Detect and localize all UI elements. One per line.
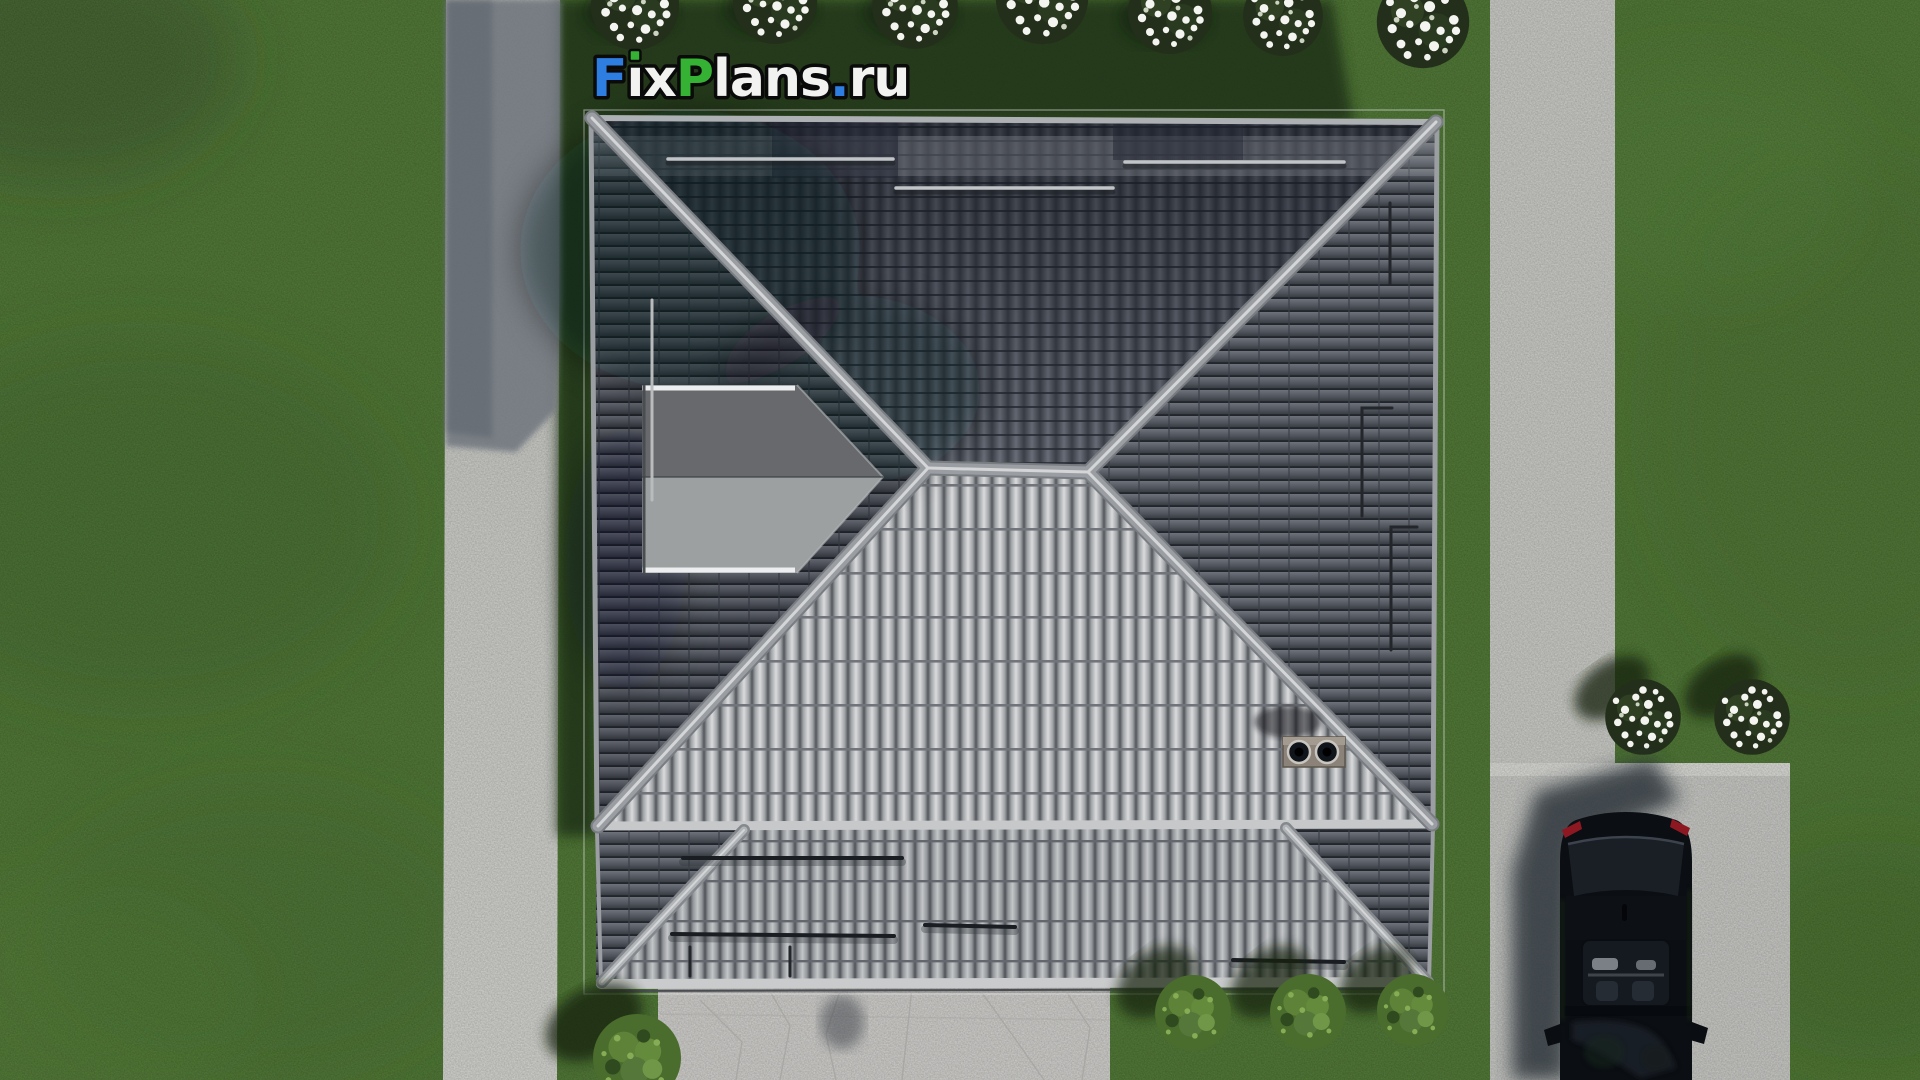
logo-part: lans [713,49,830,109]
north-eave-inset-right [1113,122,1243,160]
south-eave [597,824,1433,826]
aerial-render: FıxPlans.ru [0,0,1920,1080]
logo-part: ru [849,49,910,109]
seat-left [1596,981,1618,1001]
green-bush [1377,974,1449,1046]
watermark: FıxPlans.ru [592,49,909,109]
chimney-shadow [1254,706,1322,738]
interior-highlight [1636,960,1656,970]
shadow-on-left-walkway-dark [446,0,492,438]
interior-highlight [1592,958,1618,970]
logo-part: x [643,49,676,109]
seat-right [1632,981,1654,1001]
house-roof [520,110,1444,994]
rear-window [1568,837,1684,896]
logo-part: F [592,49,627,109]
green-bush [1155,975,1231,1051]
flower-bush [1714,679,1790,755]
logo-part: . [830,49,849,109]
scene-canvas: FıxPlans.ru [0,0,1920,1080]
cowl [1564,1006,1692,1016]
flower-bush [1605,679,1681,755]
antenna [1622,904,1627,921]
logo-i-dot [629,50,640,61]
logo-part: P [676,49,713,109]
glass-canopy [1582,940,1670,1006]
driveway-shadow-blob [820,995,864,1049]
green-bush [1270,974,1346,1050]
